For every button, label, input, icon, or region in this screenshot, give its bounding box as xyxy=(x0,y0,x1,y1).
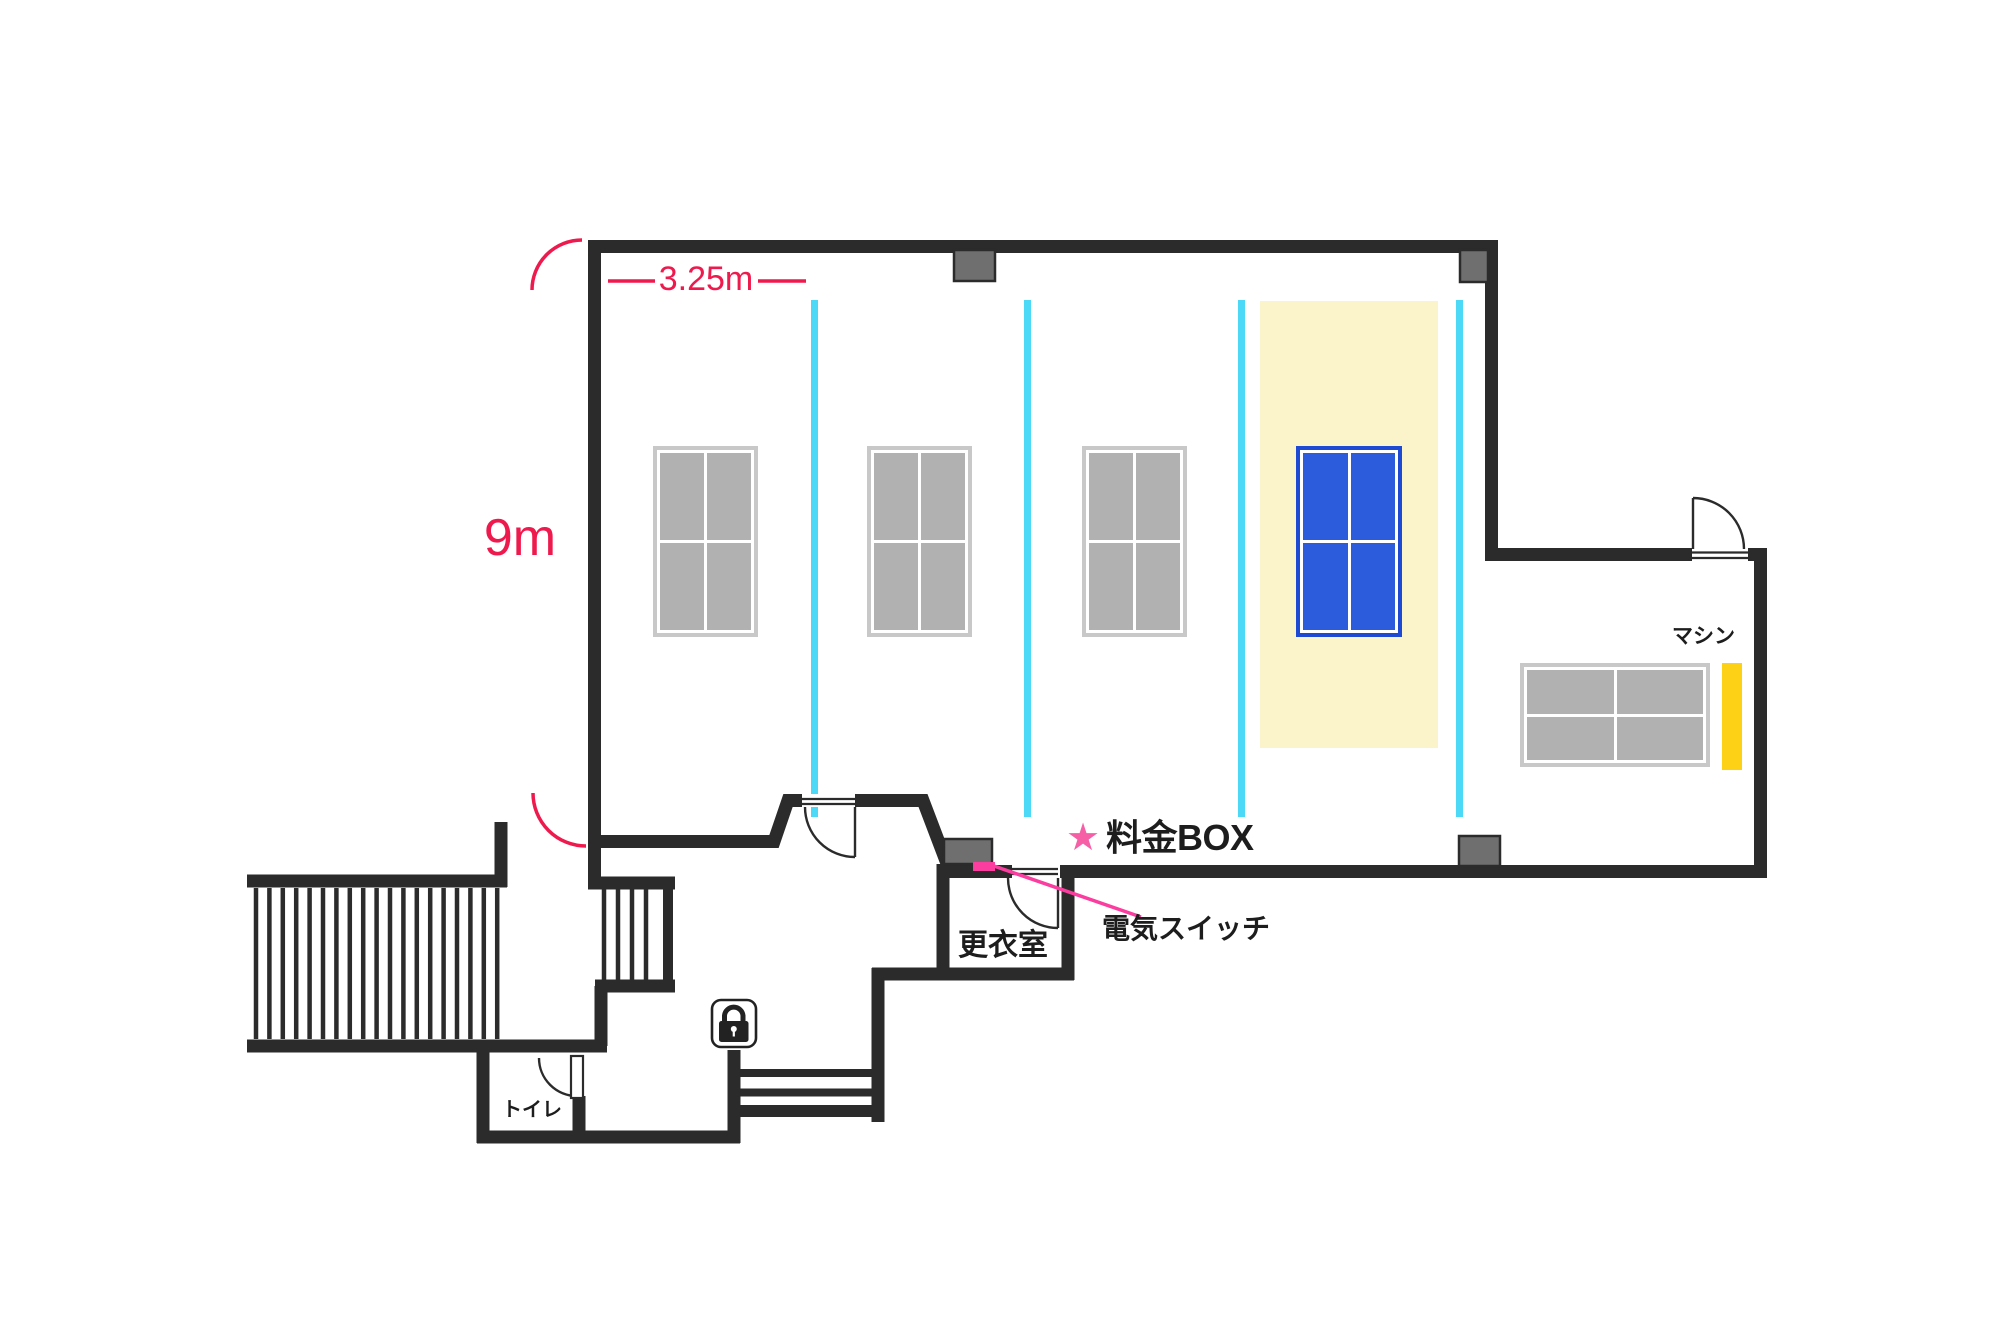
entrance-swing-arc-bottom xyxy=(533,793,586,846)
lock-icon xyxy=(712,1000,756,1047)
table-net-line xyxy=(660,540,751,543)
table-net-line xyxy=(1303,540,1395,543)
table-4-blue-highlighted xyxy=(1296,446,1402,637)
lane-divider-2 xyxy=(1024,300,1031,817)
pillar-bottom-right xyxy=(1459,836,1500,866)
light-switch-label: 電気スイッチ xyxy=(1102,914,1270,944)
table-net-line xyxy=(1089,540,1180,543)
pillar-top-left xyxy=(954,250,995,281)
floor-plan: 3.25m 9m ★ 料金BOX 電気スイッチ 更衣室 トイレ マシン xyxy=(0,0,2000,1333)
big-staircase-treads xyxy=(256,888,497,1039)
changing-room-label: 更衣室 xyxy=(958,930,1048,962)
table-3-gray xyxy=(1082,446,1187,637)
toilet-door-leaf xyxy=(571,1056,583,1098)
table-1-gray xyxy=(653,446,758,637)
entry-steps xyxy=(740,1073,873,1111)
table-2-gray xyxy=(867,446,972,637)
lane-divider-3 xyxy=(1238,300,1245,817)
light-switch-marker xyxy=(973,862,995,871)
toilet-door-arc xyxy=(539,1058,577,1096)
lane-divider-1 xyxy=(811,300,818,817)
table-net-line xyxy=(874,540,965,543)
annex-door xyxy=(1693,498,1744,549)
toilet-label: トイレ xyxy=(498,1100,566,1122)
machine-label: マシン xyxy=(1672,626,1735,649)
table-center-line xyxy=(1527,714,1703,717)
light-switch-pointer-line xyxy=(994,866,1141,917)
pillar-bottom-left xyxy=(944,839,992,864)
entrance-swing-arc-top xyxy=(532,240,582,290)
lane-divider-4 xyxy=(1456,300,1463,817)
width-dimension-label: 3.25m xyxy=(650,261,762,298)
fee-box-label: 料金BOX xyxy=(1106,819,1254,858)
pillar-top-right xyxy=(1460,250,1488,282)
height-dimension-label: 9m xyxy=(478,510,562,566)
star-icon: ★ xyxy=(1066,818,1100,859)
annex-table-gray xyxy=(1520,663,1710,767)
small-staircase-treads xyxy=(604,889,646,980)
changing-room-door xyxy=(1008,878,1058,928)
ball-machine-bar xyxy=(1722,663,1742,770)
wall-bottom-vestibule-right xyxy=(855,801,1012,872)
wall-bottom-vestibule-left xyxy=(588,801,802,842)
